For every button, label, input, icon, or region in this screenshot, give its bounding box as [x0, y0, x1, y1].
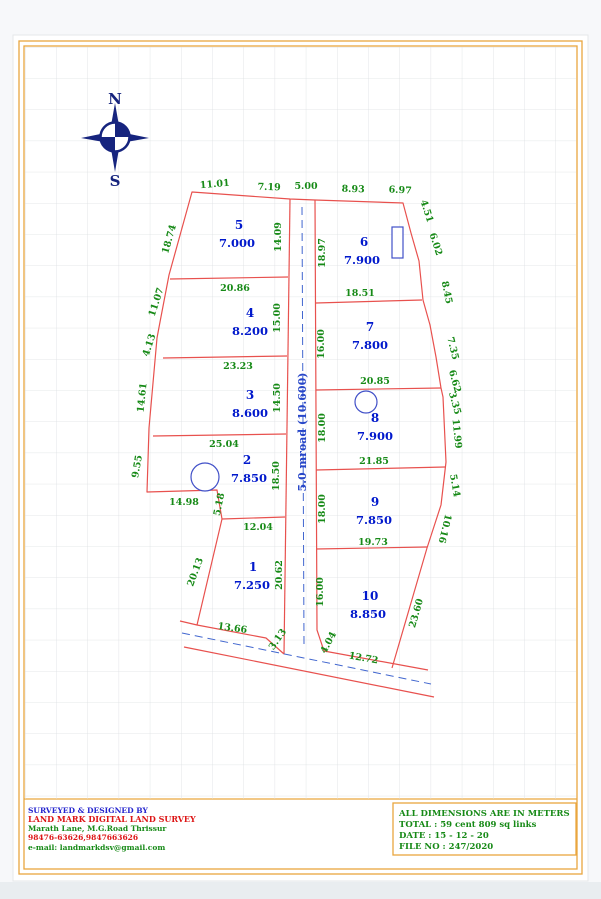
plot4-area: 8.200: [232, 324, 268, 338]
dim-top-2: 7.19: [257, 182, 281, 194]
survey-plan-page: N S 5.0 mroad (10.600) 11.01 7.19 5.00 8…: [0, 0, 601, 899]
surveyor-name: LAND MARK DIGITAL LAND SURVEY: [28, 814, 196, 824]
plot10-number: 10: [362, 589, 379, 603]
units-note: ALL DIMENSIONS ARE IN METERS: [398, 809, 570, 819]
dim-top-3: 5.00: [294, 181, 318, 192]
dim-plot7-top: 18.51: [345, 288, 375, 299]
road-label: 5.0 mroad (10.600): [296, 373, 309, 492]
dim-notch-horizontal: 14.98: [169, 497, 199, 508]
dim-plot1-right: 20.62: [274, 560, 285, 590]
plot5-number: 5: [235, 218, 243, 232]
plot8-number: 8: [371, 411, 379, 425]
plot1-number: 1: [249, 560, 257, 574]
dim-plot8-top: 20.85: [360, 376, 390, 387]
dim-plot7-left: 16.00: [316, 329, 327, 359]
file-number: FILE NO : 247/2020: [399, 842, 493, 852]
dim-plot3-right: 14.50: [272, 383, 283, 413]
plot8-area: 7.900: [357, 429, 393, 443]
dim-top-5: 6.97: [388, 184, 412, 196]
dim-plot3-top: 23.23: [223, 361, 253, 372]
dim-plot9-bottom: 19.73: [358, 537, 388, 548]
survey-date: DATE : 15 - 12 - 20: [399, 831, 489, 841]
dim-plot10-left: 16.00: [315, 577, 326, 607]
structure-plot6: [392, 227, 403, 258]
dim-top-4: 8.93: [341, 184, 365, 196]
dim-plot2-right: 18.50: [271, 461, 282, 491]
survey-sheet-svg: N S 5.0 mroad (10.600) 11.01 7.19 5.00 8…: [0, 0, 601, 899]
surveyor-phone: 98476-63626,9847663626: [28, 833, 138, 842]
plot10-area: 8.850: [350, 607, 386, 621]
surveyor-address: Marath Lane, M.G.Road Thrissur: [28, 824, 167, 833]
plot7-number: 7: [366, 320, 374, 334]
dim-plot6-left: 18.97: [317, 238, 328, 268]
plot7-area: 7.800: [352, 338, 388, 352]
plot6-number: 6: [360, 235, 368, 249]
well-plot2: [191, 463, 219, 491]
dim-plot8-bottom: 21.85: [359, 456, 389, 467]
plot9-area: 7.850: [356, 513, 392, 527]
dim-plot2-top: 25.04: [209, 439, 239, 450]
well-plot8: [355, 391, 377, 413]
compass-south-label: S: [110, 172, 121, 190]
plot1-area: 7.250: [234, 578, 270, 592]
bottom-strip: [0, 882, 601, 899]
plot2-number: 2: [243, 453, 251, 467]
plot9-number: 9: [371, 495, 379, 509]
dim-plot4-top: 20.86: [220, 283, 250, 294]
dim-plot5-right: 14.09: [273, 222, 284, 252]
plot3-number: 3: [246, 388, 254, 402]
plot4-number: 4: [246, 306, 254, 320]
dim-plot8-left: 18.00: [317, 413, 328, 443]
surveyor-email: e-mail: landmarkdsv@gmail.com: [28, 843, 165, 852]
plot3-area: 8.600: [232, 406, 268, 420]
dim-plot1-top: 12.04: [243, 522, 273, 533]
compass-north-label: N: [108, 90, 122, 108]
dim-plot9-left: 18.00: [317, 494, 328, 524]
plot2-area: 7.850: [231, 471, 267, 485]
plot6-area: 7.900: [344, 253, 380, 267]
dim-plot4-right: 15.00: [272, 303, 283, 333]
total-extent: TOTAL : 59 cent 809 sq links: [399, 820, 537, 830]
plot5-area: 7.000: [219, 236, 255, 250]
